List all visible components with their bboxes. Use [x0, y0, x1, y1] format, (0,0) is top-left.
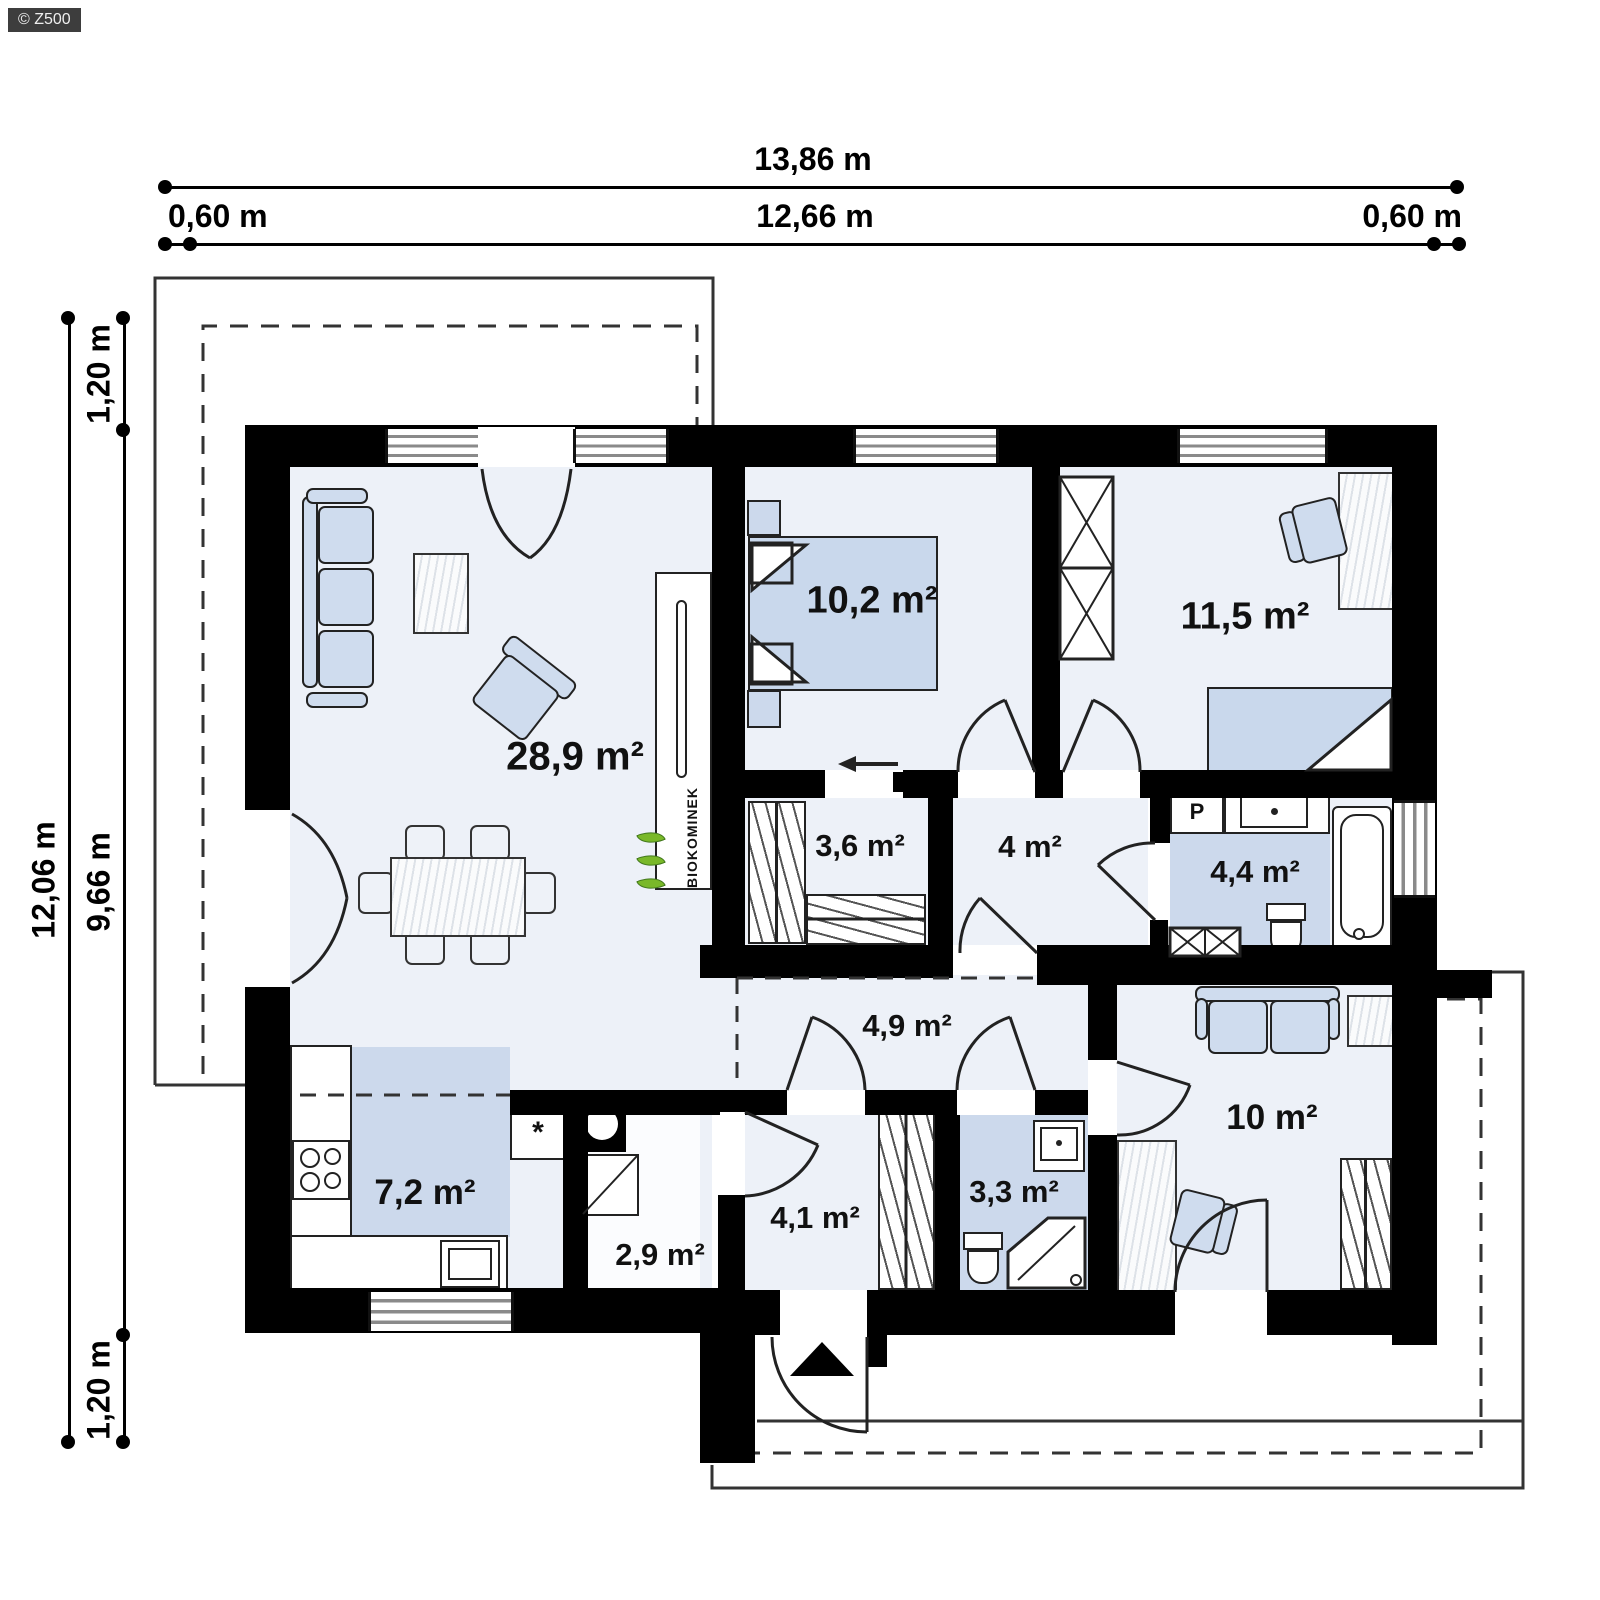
wall-interior: [563, 1115, 588, 1290]
closet-rail: [806, 894, 926, 945]
wall-interior: [935, 1115, 960, 1290]
wall-interior: [1150, 798, 1170, 843]
dimension-left-top-margin: 1,20 m: [81, 324, 118, 424]
sink-drain: [1271, 808, 1278, 815]
wall-interior: [1035, 770, 1063, 798]
wall-interior: [1035, 1090, 1088, 1115]
burner: [324, 1172, 341, 1189]
dimension-dot: [1427, 237, 1441, 251]
wall-interior: [718, 1090, 745, 1112]
boiler: [581, 1154, 639, 1216]
room-label-entrance-hall: 4,1 m²: [770, 1200, 860, 1236]
toilet-tank: [963, 1232, 1003, 1250]
sofa-back: [302, 496, 318, 688]
washing-machine-label: P: [1190, 799, 1205, 825]
floor-plan: © Z500: [0, 0, 1600, 1600]
window: [368, 1292, 514, 1331]
room-label-corridor: 4,9 m²: [862, 1008, 952, 1044]
wall-interior: [700, 945, 953, 978]
wall-interior: [510, 1090, 720, 1115]
wall-exterior-bottom: [1267, 1290, 1437, 1335]
sofa-cushion: [318, 568, 374, 626]
dimension-top-right-margin: 0,60 m: [1362, 198, 1462, 235]
toilet-bowl: [967, 1250, 999, 1284]
dining-chair: [470, 825, 510, 861]
wall-interior: [1032, 425, 1060, 770]
french-door-opening: [478, 427, 575, 467]
watermark: © Z500: [8, 8, 81, 32]
wall-vestibule: [867, 1335, 887, 1367]
wall-interior: [1088, 985, 1117, 1060]
kitchen-sink-basin: [448, 1248, 492, 1280]
window: [853, 429, 999, 463]
dimension-left-total: 12,06 m: [26, 821, 63, 938]
toilet-tank: [1266, 903, 1306, 921]
dimension-dot: [1450, 180, 1464, 194]
terrace-door-opening: [1175, 1290, 1267, 1335]
sliding-door-panel: [893, 772, 953, 792]
side-table: [1347, 995, 1395, 1047]
room-label-closet: 3,6 m²: [815, 828, 905, 864]
burner: [300, 1148, 320, 1168]
dimension-line-left-total: [68, 318, 71, 1442]
dimension-dot: [183, 237, 197, 251]
dimension-top-total: 13,86 m: [754, 141, 871, 178]
burner: [324, 1148, 341, 1165]
dimension-dot: [116, 1435, 130, 1449]
window: [385, 429, 486, 463]
wall-terrace-arm: [1437, 970, 1492, 998]
wall-vestibule: [700, 1333, 755, 1463]
dimension-top-left-margin: 0,60 m: [168, 198, 268, 235]
room-label-hall: 4 m²: [998, 829, 1062, 865]
wall-interior: [712, 425, 745, 945]
desk: [1117, 1140, 1177, 1296]
wall-interior: [1140, 770, 1437, 798]
sofa-cushion: [318, 630, 374, 688]
sink-drain: [1056, 1140, 1062, 1146]
room-label-room-10: 10 m²: [1226, 1098, 1317, 1138]
single-bed: [1207, 687, 1393, 772]
dimension-dot: [61, 311, 75, 325]
sofa-armrest: [306, 692, 368, 708]
dimension-line-top-total: [165, 186, 1457, 189]
wall-interior: [1037, 945, 1437, 985]
wall-exterior-bottom: [705, 1290, 1088, 1335]
coffee-table: [413, 553, 469, 634]
nightstand: [747, 690, 781, 728]
sofa-two-seat: [1195, 986, 1340, 1058]
dimension-dot: [116, 423, 130, 437]
dimension-dot: [116, 1328, 130, 1342]
dimension-dot: [1452, 237, 1466, 251]
sofa-cushion: [318, 506, 374, 564]
room-label-shower-room: 3,3 m²: [969, 1174, 1059, 1210]
asterisk-label: *: [532, 1116, 544, 1150]
hall-wardrobe: [878, 1113, 935, 1290]
bathroom-accent-floor: [1170, 833, 1330, 955]
dimension-dot: [116, 311, 130, 325]
dimension-left-bottom-margin: 1,20 m: [81, 1340, 118, 1440]
window: [1394, 800, 1435, 898]
room-label-utility: 2,9 m²: [615, 1237, 705, 1273]
wall-interior: [928, 798, 953, 948]
hall-floor: [953, 798, 1148, 945]
dimension-left-inner: 9,66 m: [81, 832, 118, 932]
wall-interior: [745, 1090, 787, 1115]
burner: [300, 1172, 320, 1192]
desk: [1338, 472, 1397, 610]
wall-interior: [1088, 1135, 1117, 1335]
room-label-living: 28,9 m²: [506, 735, 644, 780]
dining-table: [390, 857, 526, 937]
window: [573, 429, 669, 463]
wall-interior: [1150, 920, 1168, 958]
dimension-top-inner: 12,66 m: [756, 198, 873, 235]
dimension-dot: [158, 180, 172, 194]
room-label-bedroom-2: 11,5 m²: [1181, 596, 1310, 639]
room-label-bedroom-1: 10,2 m²: [807, 580, 938, 623]
closet-rail: [748, 801, 806, 944]
entrance-door-opening: [780, 1290, 867, 1335]
bathtub-drain: [1353, 928, 1365, 940]
room-label-kitchen: 7,2 m²: [374, 1173, 475, 1213]
sofa-armrest: [306, 488, 368, 504]
dimension-dot: [158, 237, 172, 251]
dimension-line-top-inner: [165, 243, 1459, 246]
wall-interior: [865, 1090, 957, 1115]
window: [1177, 429, 1328, 463]
wall-interior: [718, 1195, 745, 1290]
dining-chair: [358, 872, 394, 914]
room-label-bathroom: 4,4 m²: [1210, 854, 1300, 890]
fireplace-glass: [676, 600, 687, 778]
dining-chair: [405, 825, 445, 861]
nightstand: [747, 500, 781, 536]
bathtub-inner: [1340, 814, 1384, 938]
dimension-dot: [61, 1435, 75, 1449]
stove: [292, 1140, 350, 1200]
fireplace-label: BIOKOMINEK: [684, 786, 700, 888]
wall-interior: [712, 770, 825, 798]
dimension-line-left-inner: [123, 318, 126, 1442]
terrace-door-opening: [245, 810, 290, 987]
wardrobe: [1340, 1158, 1392, 1290]
